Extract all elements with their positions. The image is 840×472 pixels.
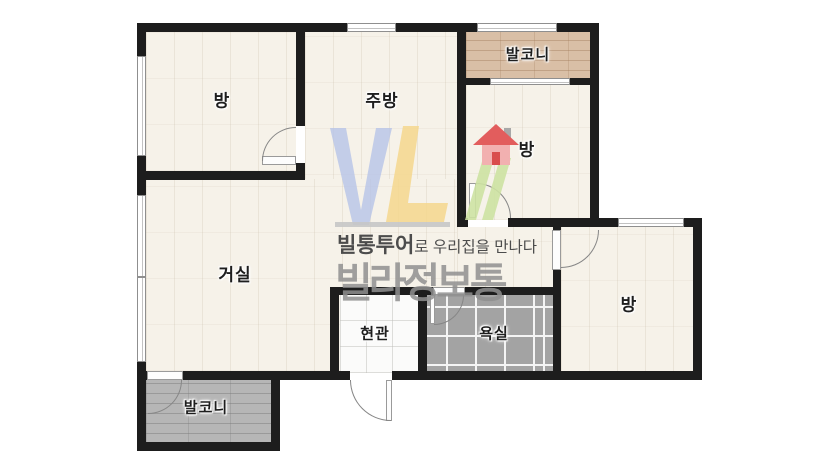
- wall: [183, 371, 350, 380]
- wall: [330, 287, 339, 371]
- wall: [137, 171, 305, 180]
- wall: [392, 371, 702, 380]
- wall: [590, 23, 599, 227]
- door-leaf-bedroom-top-right: [469, 183, 476, 218]
- room-label-balcony-top: 발코니: [506, 48, 550, 63]
- door-leaf-bathroom: [433, 287, 465, 295]
- room-label-bedroom-top-left: 방: [214, 93, 231, 110]
- window: [137, 56, 146, 156]
- wall: [271, 371, 280, 451]
- window: [477, 23, 557, 32]
- wall: [466, 78, 490, 85]
- window: [618, 218, 684, 227]
- room-label-bathroom: 욕실: [479, 327, 509, 342]
- door-leaf-bedroom-bottom-right: [552, 230, 561, 270]
- floor-hallway: [457, 227, 553, 288]
- wall: [457, 218, 468, 227]
- wall: [137, 442, 280, 451]
- window: [137, 195, 146, 277]
- wall: [553, 270, 561, 380]
- floor-plan-canvas: 방 주방 발코니 방 거실 현관 욕실 방 발코니 빌통투어로 우리집을 만나다…: [0, 0, 840, 472]
- room-label-living-room: 거실: [218, 267, 251, 284]
- door-arc-front-door: [350, 380, 391, 421]
- room-label-kitchen: 주방: [365, 93, 398, 110]
- wall: [465, 287, 553, 295]
- window: [347, 23, 396, 32]
- wall: [296, 23, 305, 126]
- room-label-balcony-bottom: 발코니: [184, 401, 228, 416]
- room-label-entrance: 현관: [360, 327, 390, 342]
- window: [490, 78, 570, 85]
- room-label-bedroom-bottom-right: 방: [621, 297, 638, 314]
- door-leaf-balcony-bottom: [147, 371, 183, 380]
- room-label-bedroom-top-right: 방: [519, 142, 536, 159]
- wall: [457, 23, 466, 227]
- wall: [693, 218, 702, 380]
- wall: [418, 287, 427, 371]
- window: [137, 277, 146, 362]
- wall: [570, 78, 590, 85]
- wall: [553, 218, 561, 230]
